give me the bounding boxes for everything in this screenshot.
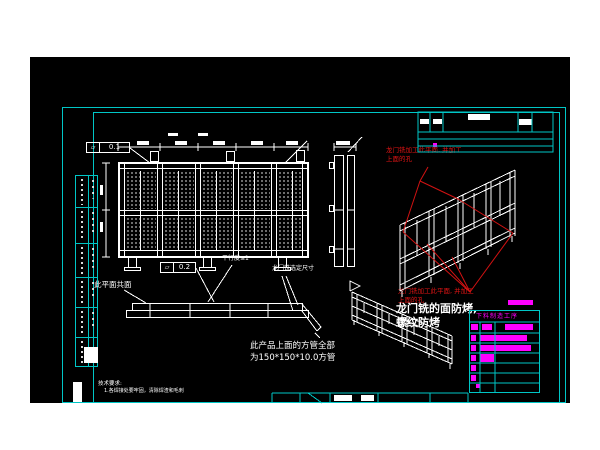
- cad-drawing-screenshot: ▱ 0.1 ▱ 0.2 此平面共面 平行度≤1 龙门铣选定尺寸 龙门铣加工此平面…: [0, 0, 600, 450]
- drawing-linework: [0, 0, 600, 450]
- white-linework: [102, 137, 515, 369]
